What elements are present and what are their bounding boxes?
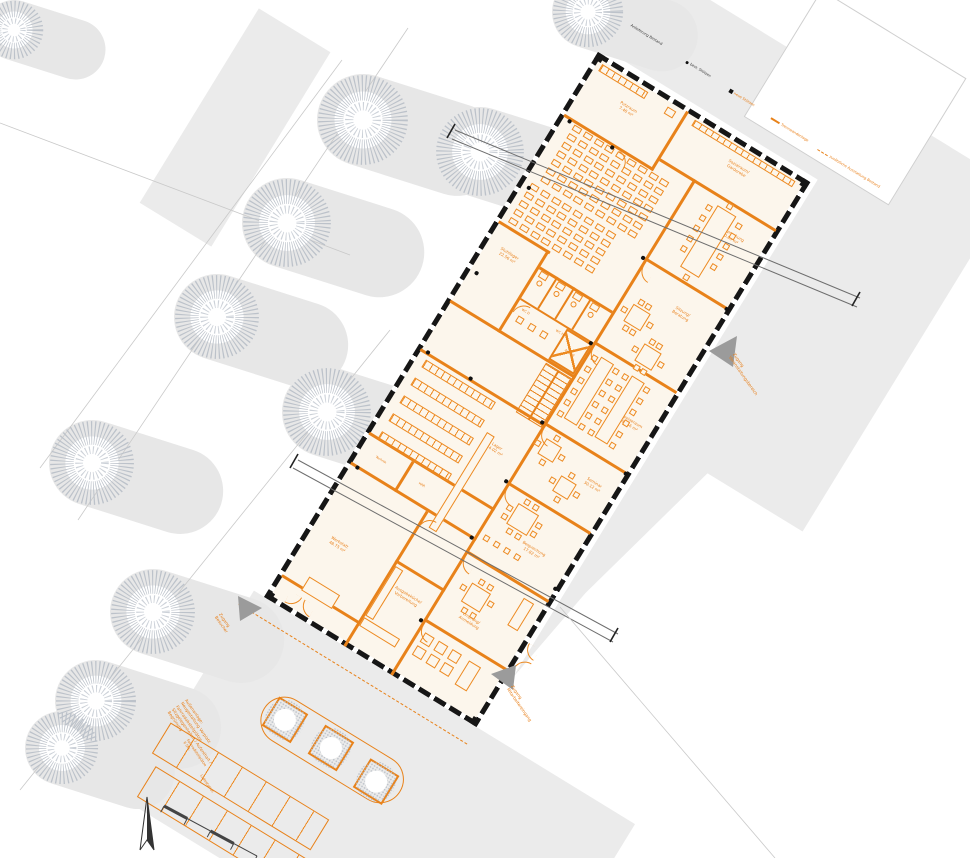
- entry-arrow-left-icon: [238, 596, 262, 621]
- scale-bar: [161, 806, 257, 858]
- overlay-layer: [0, 0, 970, 858]
- section-line: [293, 130, 860, 642]
- site-plan-canvas: Putzraum7.48 m² Sozialraum/Garderobe Bes…: [0, 0, 970, 858]
- section-tick: [290, 124, 860, 642]
- north-arrow-icon: [140, 797, 154, 850]
- property-line: [560, 607, 775, 858]
